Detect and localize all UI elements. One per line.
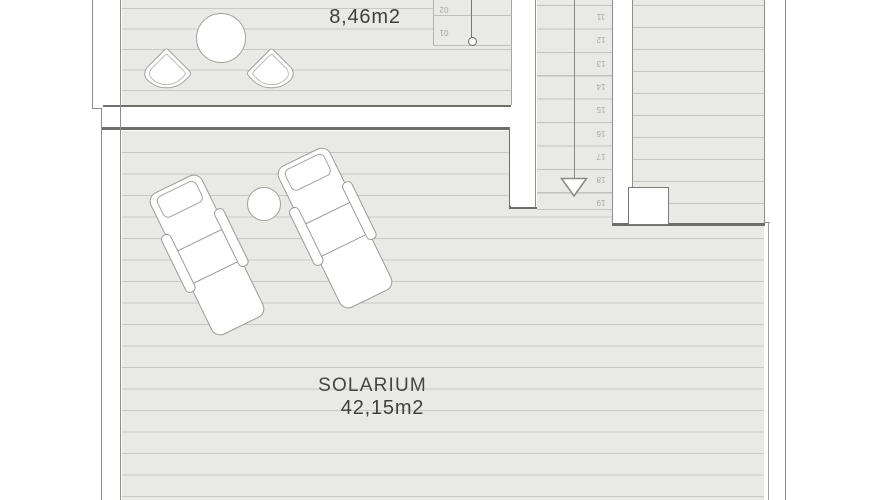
step-number: 17: [593, 151, 609, 161]
round-table-icon: [196, 13, 246, 63]
floor-plan: 02 01 TERRAZA 8,46m2 11 12 13 14 15 16: [0, 0, 890, 500]
stair-lower-flight: 11 12 13 14 15 16 17 18 19: [537, 0, 612, 210]
right-wall-outer: [785, 0, 786, 500]
stairwell-wall-left: [511, 0, 537, 207]
terrace-bottom-wall: [103, 105, 536, 107]
railing-line: [471, 0, 472, 38]
step-number: 16: [593, 128, 609, 138]
step-number: 13: [593, 58, 609, 68]
step-number: 12: [593, 34, 609, 44]
railing-post-icon: [468, 37, 477, 46]
right-wall-inner-bottom: [768, 222, 769, 500]
solarium-name: SOLARIUM: [290, 375, 455, 397]
down-arrow-icon: [560, 177, 588, 198]
step-number: 01: [436, 27, 452, 37]
terrace-area: 8,46m2: [295, 6, 435, 29]
solarium-border-top: [101, 127, 513, 130]
left-wall-inner: [120, 0, 121, 500]
left-wall-outer-top: [92, 0, 93, 109]
left-wall-outer-bottom: [101, 108, 102, 500]
step-number: 14: [593, 81, 609, 91]
step-number: 19: [593, 197, 609, 207]
step-number: 02: [436, 4, 452, 14]
solarium-label: SOLARIUM 42,15m2: [290, 375, 455, 420]
solarium-area: 42,15m2: [290, 397, 455, 420]
step-number: 15: [593, 104, 609, 114]
side-table-icon: [247, 187, 281, 221]
right-wall-inner-top: [764, 0, 765, 223]
stair-direction-line: [574, 0, 575, 180]
step-number: 18: [593, 174, 609, 184]
left-wall-jog: [92, 108, 102, 109]
step-number: 11: [593, 11, 609, 21]
terrace-label: TERRAZA 8,46m2: [295, 0, 435, 29]
landing-column: [628, 187, 669, 226]
